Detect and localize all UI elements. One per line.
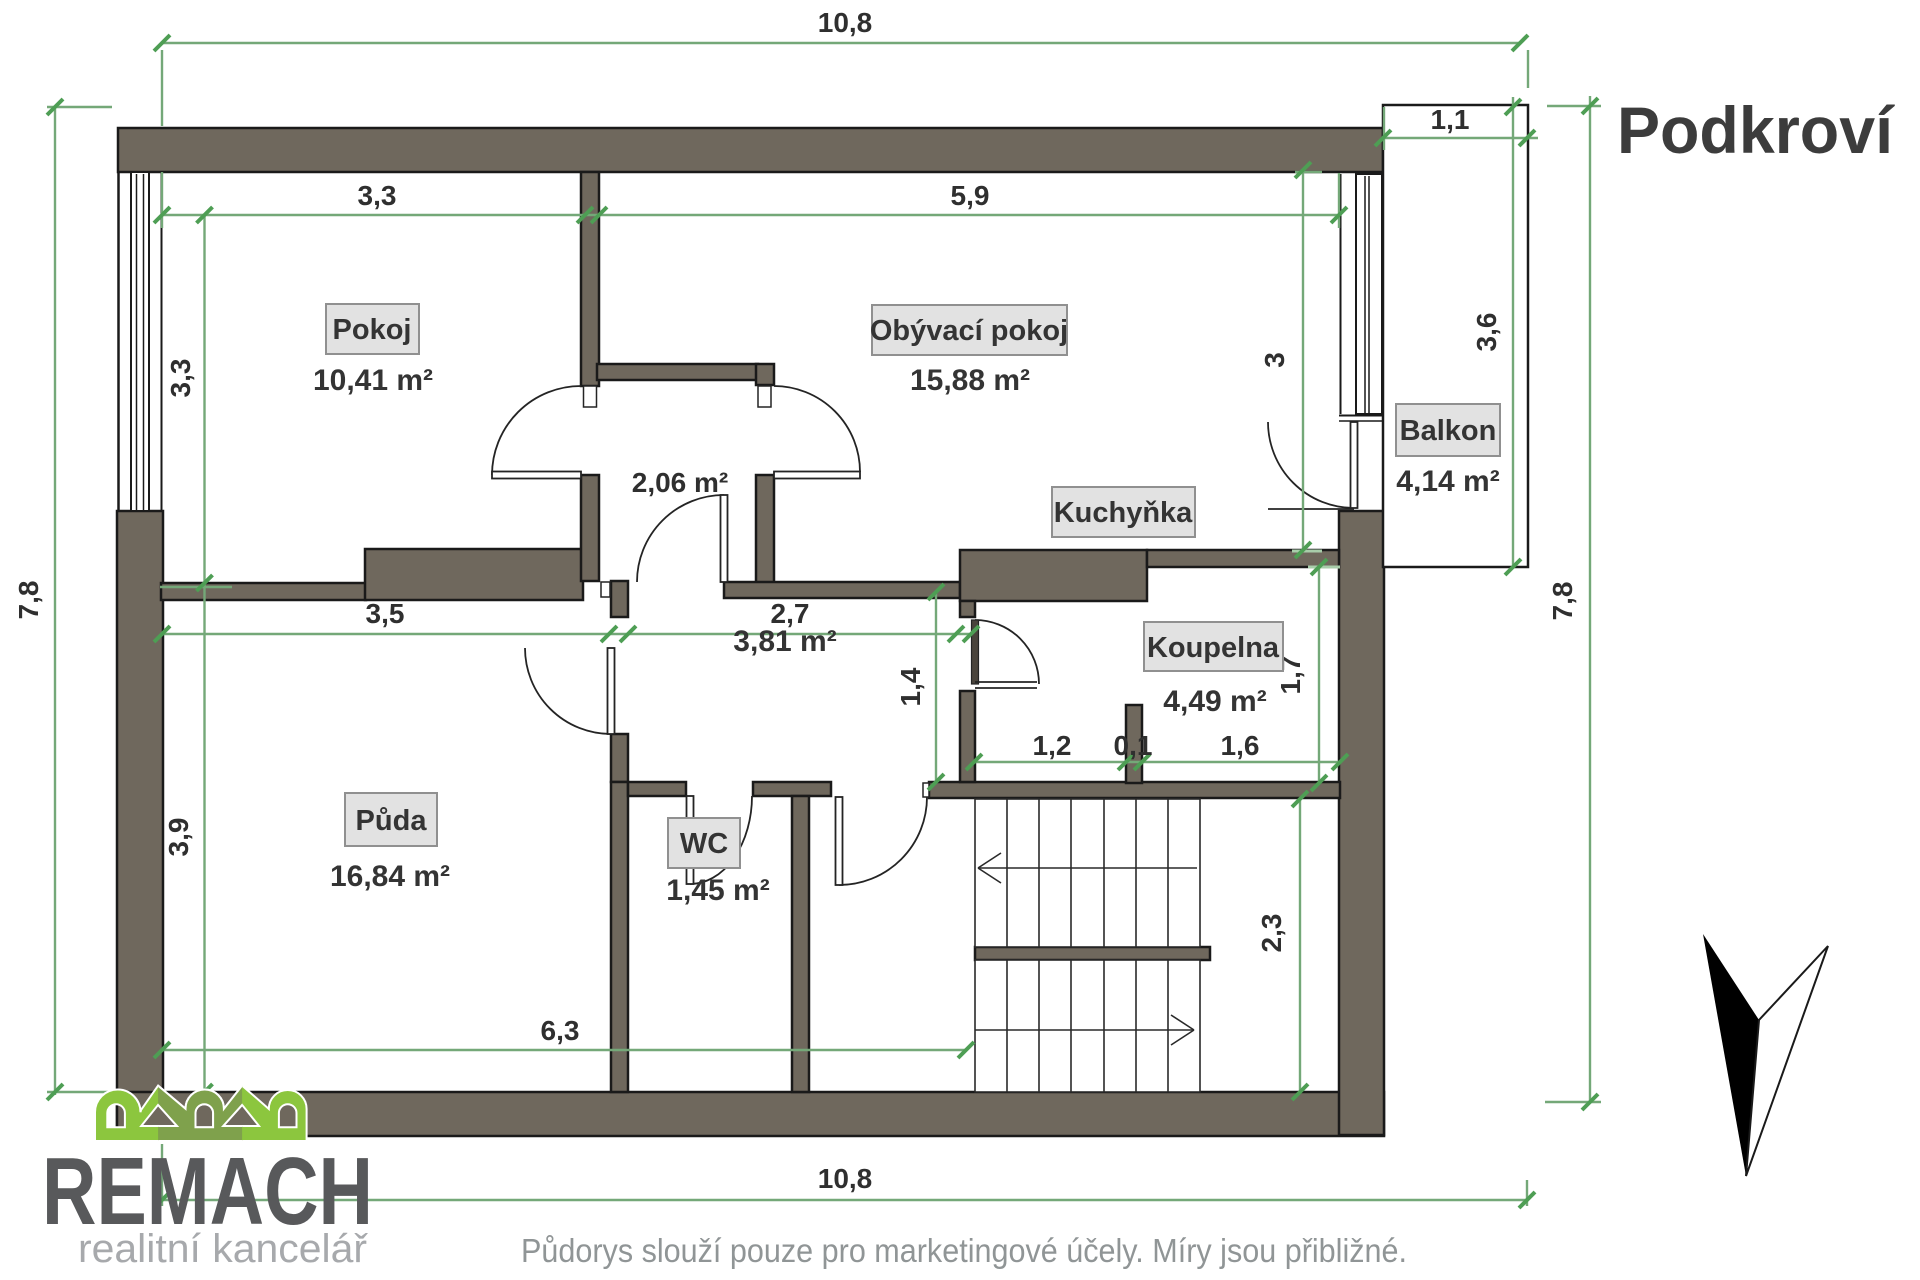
svg-text:1,4: 1,4 xyxy=(895,667,926,706)
svg-text:7,8: 7,8 xyxy=(13,581,44,620)
svg-text:16,84 m²: 16,84 m² xyxy=(330,860,450,893)
svg-text:Koupelna: Koupelna xyxy=(1147,632,1280,664)
svg-text:6,3: 6,3 xyxy=(541,1015,580,1046)
svg-text:3,9: 3,9 xyxy=(163,818,194,857)
svg-text:4,14 m²: 4,14 m² xyxy=(1396,465,1499,498)
svg-text:WC: WC xyxy=(680,828,728,860)
svg-text:3,5: 3,5 xyxy=(366,598,405,629)
svg-text:Obývací pokoj: Obývací pokoj xyxy=(870,315,1068,347)
svg-text:1,1: 1,1 xyxy=(1431,104,1470,135)
svg-text:Kuchyňka: Kuchyňka xyxy=(1054,497,1193,529)
svg-text:3,3: 3,3 xyxy=(358,180,397,211)
svg-text:7,8: 7,8 xyxy=(1547,582,1578,621)
svg-text:realitní kancelář: realitní kancelář xyxy=(78,1227,369,1271)
svg-text:15,88 m²: 15,88 m² xyxy=(910,364,1030,397)
svg-text:5,9: 5,9 xyxy=(951,180,990,211)
svg-text:4,49 m²: 4,49 m² xyxy=(1163,685,1266,718)
svg-text:Pokoj: Pokoj xyxy=(333,314,412,346)
svg-text:1,45 m²: 1,45 m² xyxy=(666,874,769,907)
svg-text:3,3: 3,3 xyxy=(165,359,196,398)
svg-text:Půdorys slouží pouze pro marke: Půdorys slouží pouze pro marketingové úč… xyxy=(521,1232,1407,1269)
svg-text:Balkon: Balkon xyxy=(1400,415,1497,447)
svg-text:Podkroví: Podkroví xyxy=(1617,93,1896,167)
svg-text:1,2: 1,2 xyxy=(1033,730,1072,761)
svg-text:1,6: 1,6 xyxy=(1221,730,1260,761)
svg-text:3,6: 3,6 xyxy=(1471,313,1502,352)
svg-text:2,06 m²: 2,06 m² xyxy=(632,467,729,498)
svg-text:2,3: 2,3 xyxy=(1256,914,1287,953)
svg-text:3: 3 xyxy=(1259,352,1290,368)
svg-text:10,8: 10,8 xyxy=(818,1163,873,1194)
svg-text:3,81 m²: 3,81 m² xyxy=(733,625,836,658)
svg-text:Půda: Půda xyxy=(356,805,428,837)
svg-text:0,1: 0,1 xyxy=(1114,730,1153,761)
svg-text:10,41 m²: 10,41 m² xyxy=(313,364,433,397)
svg-text:10,8: 10,8 xyxy=(818,7,873,38)
